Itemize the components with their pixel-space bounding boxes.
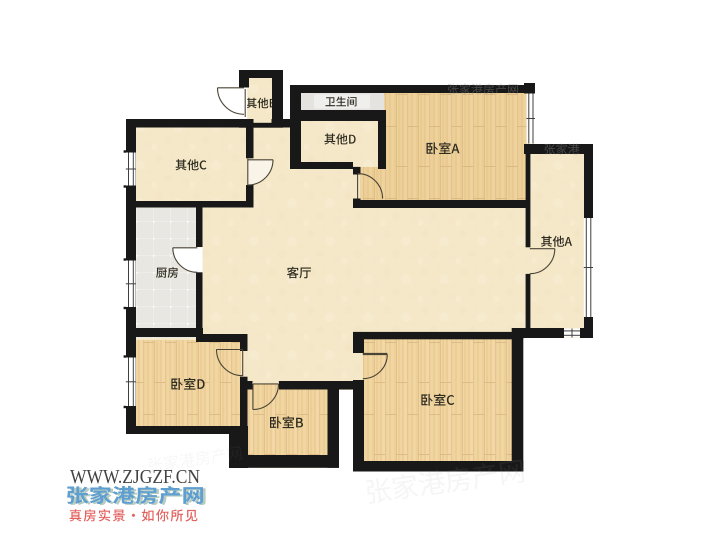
svg-text:WWW.ZJGZF.CN: WWW.ZJGZF.CN [70, 466, 200, 488]
